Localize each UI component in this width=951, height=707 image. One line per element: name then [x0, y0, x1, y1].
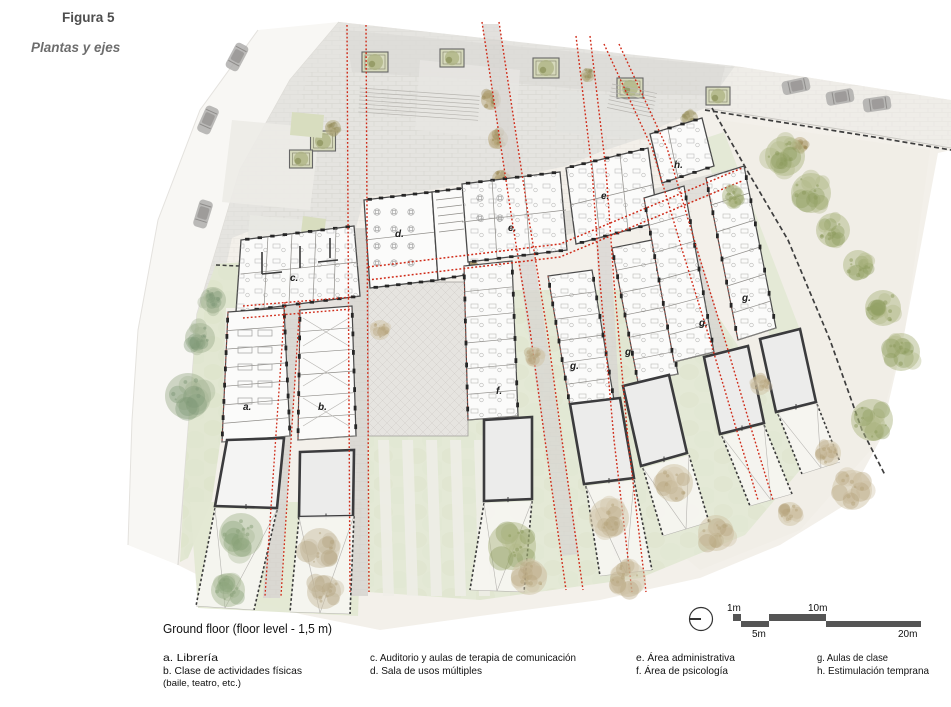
svg-text:Plantas y ejes: Plantas y ejes — [31, 40, 121, 55]
svg-text:10m: 10m — [808, 603, 827, 614]
svg-text:a. Librería: a. Librería — [163, 652, 218, 664]
svg-text:f. Área de psicología: f. Área de psicología — [636, 664, 728, 677]
svg-text:Figura 5: Figura 5 — [62, 10, 115, 25]
svg-text:h. Estimulación temprana: h. Estimulación temprana — [817, 665, 929, 677]
svg-text:1m: 1m — [727, 603, 741, 614]
svg-text:b.: b. — [318, 402, 327, 413]
svg-text:e. Área administrativa: e. Área administrativa — [636, 651, 735, 664]
svg-text:e.: e. — [508, 223, 516, 234]
svg-text:(baile, teatro, etc.): (baile, teatro, etc.) — [163, 678, 241, 688]
svg-text:Ground floor (floor level - 1,: Ground floor (floor level - 1,5 m) — [163, 622, 332, 636]
svg-text:a.: a. — [243, 402, 251, 413]
svg-text:g. Aulas de clase: g. Aulas de clase — [817, 652, 888, 664]
svg-text:5m: 5m — [752, 629, 766, 640]
svg-text:g.: g. — [624, 347, 634, 358]
svg-text:d.: d. — [395, 229, 404, 240]
svg-text:g.: g. — [569, 361, 579, 372]
svg-text:g.: g. — [741, 293, 751, 304]
svg-text:c.: c. — [290, 273, 298, 284]
svg-text:f.: f. — [496, 386, 502, 397]
svg-text:h.: h. — [674, 160, 683, 171]
svg-text:d. Sala de usos múltiples: d. Sala de usos múltiples — [370, 665, 482, 677]
svg-text:c. Auditorio y aulas de terapi: c. Auditorio y aulas de terapia de comun… — [370, 652, 576, 664]
svg-text:b. Clase de actividades física: b. Clase de actividades físicas — [163, 665, 302, 677]
svg-text:20m: 20m — [898, 629, 917, 640]
